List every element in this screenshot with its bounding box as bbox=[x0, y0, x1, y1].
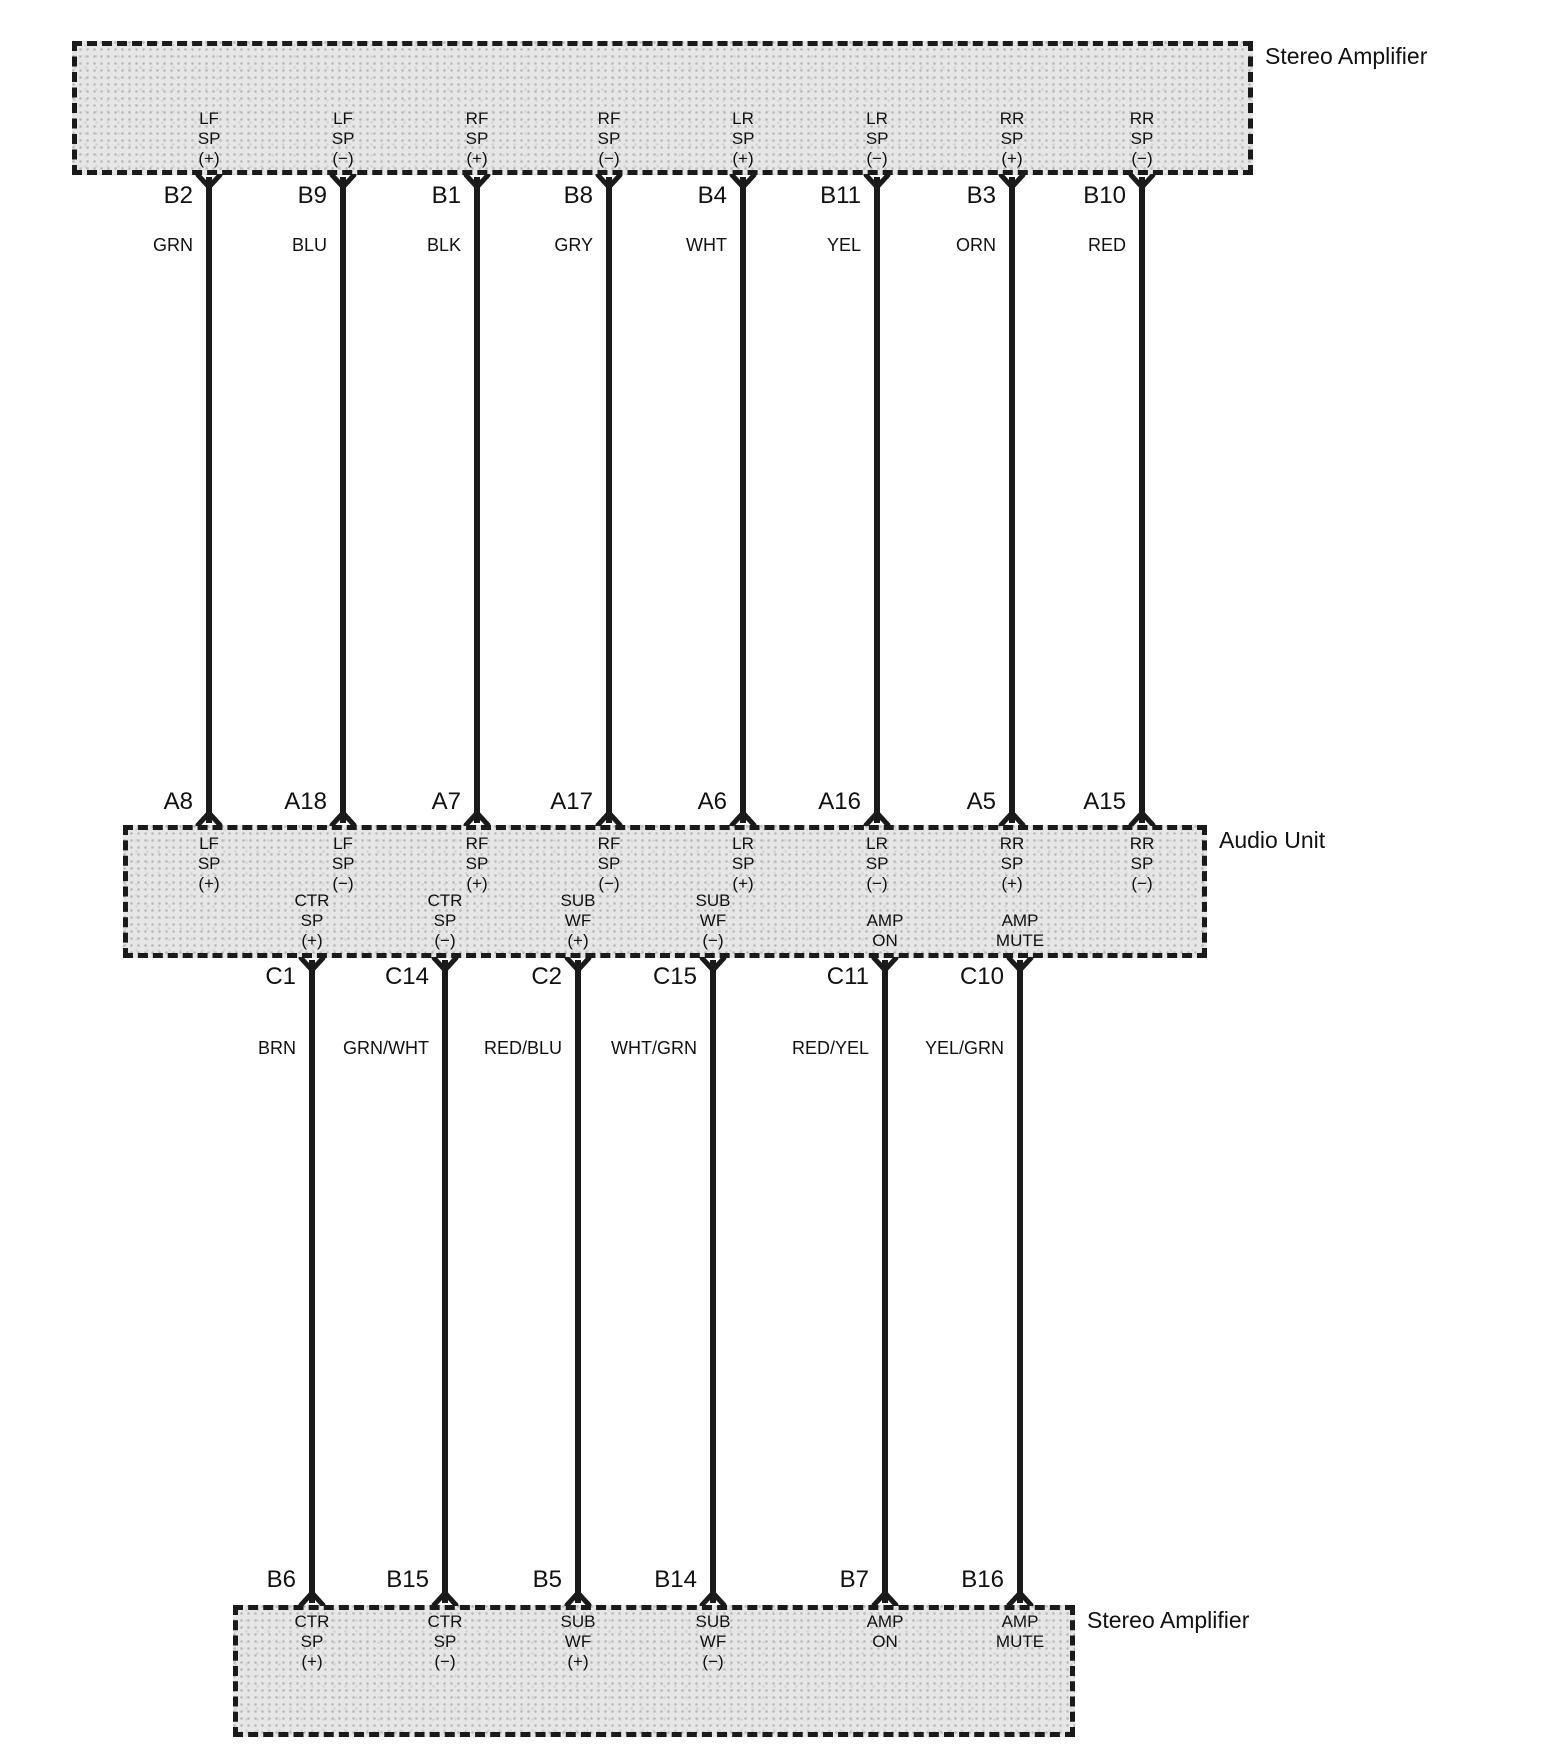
amp-pin-function-label: CTR SP (−) bbox=[428, 1612, 463, 1672]
connector-fork-icon bbox=[860, 174, 894, 202]
connector-fork-icon bbox=[868, 1578, 902, 1606]
amp-pin-function-label: RR SP (−) bbox=[1130, 109, 1155, 169]
audio-pin-id: C15 bbox=[653, 963, 697, 991]
audio-pin-id: A16 bbox=[818, 788, 861, 816]
audio-pin-id: A15 bbox=[1083, 788, 1126, 816]
amp-pin-id: B3 bbox=[967, 182, 996, 210]
audio-pin-id: A7 bbox=[432, 788, 461, 816]
stereo-amplifier-top-title: Stereo Amplifier bbox=[1265, 43, 1427, 70]
wire-color-label: ORN bbox=[956, 235, 996, 256]
wire-line bbox=[575, 960, 581, 1603]
wire-color-label: WHT bbox=[686, 235, 727, 256]
connector-fork-icon bbox=[460, 798, 494, 826]
wire-color-label: GRY bbox=[554, 235, 593, 256]
connector-fork-icon bbox=[995, 798, 1029, 826]
wire-color-label: BLU bbox=[292, 235, 327, 256]
audio-unit-box bbox=[123, 825, 1207, 958]
connector-fork-icon bbox=[868, 957, 902, 985]
audio-pin-function-label: SUB WF (+) bbox=[561, 891, 596, 951]
audio-pin-function-label: LF SP (+) bbox=[198, 834, 220, 894]
connector-fork-icon bbox=[561, 1578, 595, 1606]
wire-line bbox=[442, 960, 448, 1603]
audio-pin-id: A17 bbox=[550, 788, 593, 816]
wire-color-label: WHT/GRN bbox=[611, 1038, 697, 1059]
amp-pin-function-label: LR SP (+) bbox=[732, 109, 754, 169]
audio-pin-function-label: AMP ON bbox=[867, 911, 904, 951]
audio-pin-function-label: AMP MUTE bbox=[996, 911, 1044, 951]
amp-pin-id: B4 bbox=[698, 182, 727, 210]
connector-fork-icon bbox=[592, 174, 626, 202]
connector-fork-icon bbox=[192, 798, 226, 826]
connector-fork-icon bbox=[860, 798, 894, 826]
connector-fork-icon bbox=[561, 957, 595, 985]
amp-pin-id: B8 bbox=[564, 182, 593, 210]
audio-pin-function-label: LR SP (−) bbox=[866, 834, 888, 894]
connector-fork-icon bbox=[1125, 174, 1159, 202]
amp-pin-id: B16 bbox=[961, 1566, 1004, 1594]
audio-pin-id: A8 bbox=[164, 788, 193, 816]
audio-pin-id: C1 bbox=[265, 963, 296, 991]
connector-fork-icon bbox=[460, 174, 494, 202]
amp-pin-id: B10 bbox=[1083, 182, 1126, 210]
audio-pin-id: C11 bbox=[827, 963, 869, 991]
wire-line bbox=[740, 177, 746, 823]
audio-pin-id: C10 bbox=[960, 963, 1004, 991]
wire-color-label: YEL/GRN bbox=[925, 1038, 1004, 1059]
audio-pin-function-label: LR SP (+) bbox=[732, 834, 754, 894]
connector-fork-icon bbox=[295, 957, 329, 985]
wire-line bbox=[1009, 177, 1015, 823]
amp-pin-id: B2 bbox=[164, 182, 193, 210]
connector-fork-icon bbox=[726, 798, 760, 826]
amp-pin-function-label: LR SP (−) bbox=[866, 109, 888, 169]
audio-pin-function-label: RF SP (+) bbox=[466, 834, 489, 894]
amp-pin-function-label: LF SP (+) bbox=[198, 109, 220, 169]
wire-line bbox=[309, 960, 315, 1603]
amp-pin-id: B15 bbox=[386, 1566, 429, 1594]
audio-pin-id: A5 bbox=[967, 788, 996, 816]
amp-pin-function-label: RF SP (+) bbox=[466, 109, 489, 169]
connector-fork-icon bbox=[1003, 1578, 1037, 1606]
connector-fork-icon bbox=[726, 174, 760, 202]
wire-color-label: YEL bbox=[827, 235, 861, 256]
wire-color-label: RED/BLU bbox=[484, 1038, 562, 1059]
amp-pin-function-label: AMP MUTE bbox=[996, 1612, 1044, 1652]
audio-pin-function-label: CTR SP (−) bbox=[428, 891, 463, 951]
wire-color-label: BRN bbox=[258, 1038, 296, 1059]
audio-pin-function-label: RF SP (−) bbox=[598, 834, 621, 894]
connector-fork-icon bbox=[1125, 798, 1159, 826]
wire-line bbox=[340, 177, 346, 823]
audio-unit-title: Audio Unit bbox=[1219, 827, 1325, 854]
amp-pin-id: B1 bbox=[432, 182, 461, 210]
connector-fork-icon bbox=[592, 798, 626, 826]
audio-pin-id: C2 bbox=[531, 963, 562, 991]
amp-pin-id: B7 bbox=[840, 1566, 869, 1594]
amp-pin-function-label: SUB WF (+) bbox=[561, 1612, 596, 1672]
connector-fork-icon bbox=[696, 1578, 730, 1606]
audio-pin-id: A6 bbox=[698, 788, 727, 816]
stereo-amplifier-top-box bbox=[72, 41, 1253, 175]
amp-pin-function-label: SUB WF (−) bbox=[696, 1612, 731, 1672]
connector-fork-icon bbox=[192, 174, 226, 202]
wire-line bbox=[206, 177, 212, 823]
wire-line bbox=[606, 177, 612, 823]
amp-pin-id: B11 bbox=[820, 182, 861, 210]
wire-line bbox=[1017, 960, 1023, 1603]
amp-pin-id: B6 bbox=[267, 1566, 296, 1594]
audio-pin-function-label: RR SP (−) bbox=[1130, 834, 1155, 894]
wire-color-label: RED/YEL bbox=[792, 1038, 869, 1059]
stereo-amplifier-bottom-box bbox=[233, 1605, 1075, 1737]
wire-color-label: BLK bbox=[427, 235, 461, 256]
amp-pin-function-label: CTR SP (+) bbox=[295, 1612, 330, 1672]
audio-pin-function-label: CTR SP (+) bbox=[295, 891, 330, 951]
stereo-amplifier-bottom-title: Stereo Amplifier bbox=[1087, 1607, 1249, 1634]
amp-pin-id: B14 bbox=[654, 1566, 697, 1594]
audio-pin-function-label: SUB WF (−) bbox=[696, 891, 731, 951]
amp-pin-function-label: RR SP (+) bbox=[1000, 109, 1025, 169]
connector-fork-icon bbox=[428, 1578, 462, 1606]
wire-line bbox=[474, 177, 480, 823]
amp-pin-function-label: LF SP (−) bbox=[332, 109, 354, 169]
connector-fork-icon bbox=[428, 957, 462, 985]
amp-pin-id: B9 bbox=[298, 182, 327, 210]
amp-pin-function-label: AMP ON bbox=[867, 1612, 904, 1652]
wire-line bbox=[1139, 177, 1145, 823]
audio-pin-function-label: LF SP (−) bbox=[332, 834, 354, 894]
connector-fork-icon bbox=[326, 174, 360, 202]
wire-color-label: GRN bbox=[153, 235, 193, 256]
wire-line bbox=[710, 960, 716, 1603]
amp-pin-id: B5 bbox=[533, 1566, 562, 1594]
wire-line bbox=[874, 177, 880, 823]
amp-pin-function-label: RF SP (−) bbox=[598, 109, 621, 169]
wire-color-label: GRN/WHT bbox=[343, 1038, 429, 1059]
audio-pin-function-label: RR SP (+) bbox=[1000, 834, 1025, 894]
wire-color-label: RED bbox=[1088, 235, 1126, 256]
connector-fork-icon bbox=[295, 1578, 329, 1606]
connector-fork-icon bbox=[1003, 957, 1037, 985]
wiring-diagram: Stereo Amplifier Audio Unit Stereo Ampli… bbox=[0, 0, 1543, 1760]
connector-fork-icon bbox=[696, 957, 730, 985]
wire-line bbox=[882, 960, 888, 1603]
audio-pin-id: C14 bbox=[385, 963, 429, 991]
connector-fork-icon bbox=[326, 798, 360, 826]
connector-fork-icon bbox=[995, 174, 1029, 202]
audio-pin-id: A18 bbox=[284, 788, 327, 816]
